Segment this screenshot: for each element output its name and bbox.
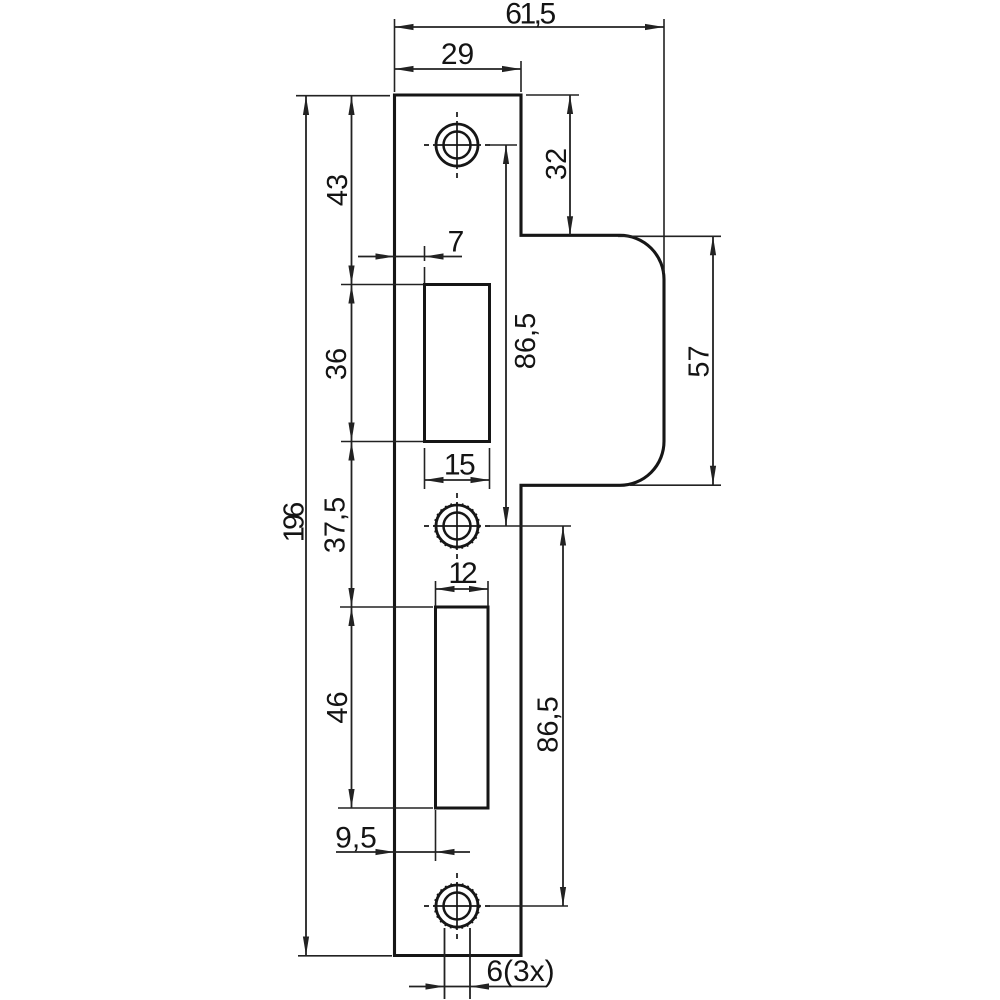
svg-text:57: 57 bbox=[684, 345, 716, 377]
svg-text:29: 29 bbox=[441, 38, 474, 71]
svg-text:86,5: 86,5 bbox=[533, 696, 565, 752]
svg-text:86,5: 86,5 bbox=[510, 313, 542, 369]
svg-text:32: 32 bbox=[541, 148, 573, 180]
svg-text:196: 196 bbox=[279, 503, 311, 542]
svg-text:43: 43 bbox=[322, 174, 354, 206]
svg-text:46: 46 bbox=[322, 691, 354, 723]
svg-text:15: 15 bbox=[444, 449, 475, 482]
svg-text:6(3x): 6(3x) bbox=[486, 955, 554, 988]
svg-text:12: 12 bbox=[448, 557, 477, 590]
svg-text:9,5: 9,5 bbox=[335, 822, 377, 855]
svg-text:7: 7 bbox=[448, 226, 465, 259]
svg-text:37,5: 37,5 bbox=[320, 497, 352, 553]
svg-text:36: 36 bbox=[321, 348, 353, 380]
svg-text:61,5: 61,5 bbox=[505, 0, 555, 31]
